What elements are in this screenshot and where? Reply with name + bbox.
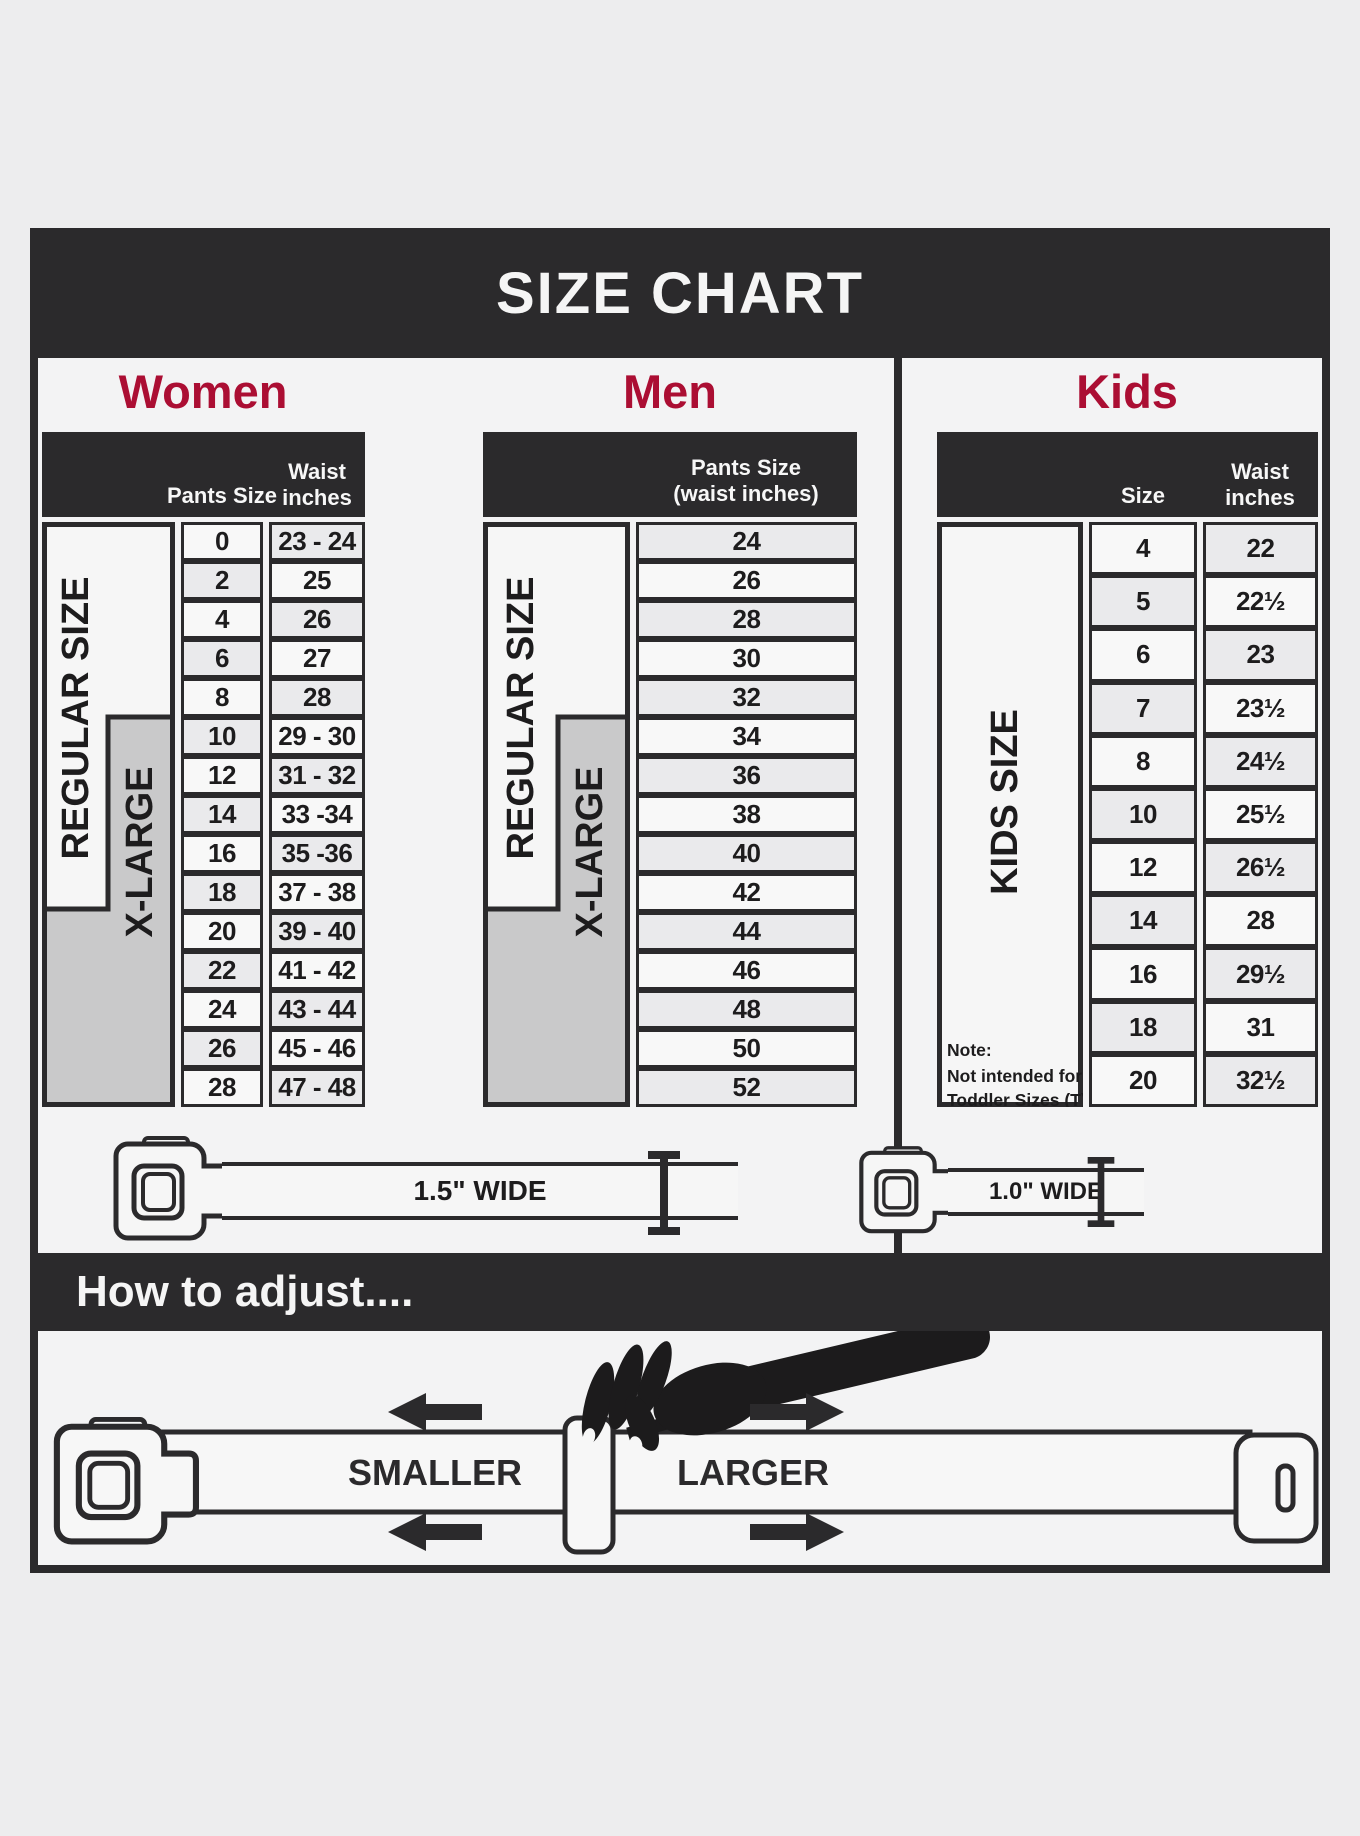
kids-size-cell: 12 bbox=[1089, 841, 1197, 894]
women-waist-cell: 41 - 42 bbox=[269, 951, 365, 990]
women-waist-cell: 33 -34 bbox=[269, 795, 365, 834]
women-waist-cell: 28 bbox=[269, 678, 365, 717]
men-pants-size-cell: 24 bbox=[636, 522, 857, 561]
how-to-adjust-heading: How to adjust.... bbox=[76, 1267, 413, 1317]
kids-size-header: Size bbox=[1121, 483, 1165, 509]
women-xlarge-label: X-LARGE bbox=[119, 767, 161, 938]
men-table: 24 26 28 30 32 34 36 38 40 42 44 46 48 5… bbox=[636, 522, 857, 1107]
men-pants-size-cell: 26 bbox=[636, 561, 857, 600]
men-pants-size-cell: 46 bbox=[636, 951, 857, 990]
women-pants-size-cell: 4 bbox=[181, 600, 263, 639]
women-table: 0 23 - 24 2 25 4 26 6 27 8 28 10 29 - 30… bbox=[181, 522, 365, 1107]
women-waist-cell: 37 - 38 bbox=[269, 873, 365, 912]
smaller-label: SMALLER bbox=[348, 1452, 522, 1493]
kids-size-cell: 14 bbox=[1089, 894, 1197, 947]
kids-waist-cell: 25½ bbox=[1203, 788, 1318, 841]
women-table-header: Pants Size Waistinches bbox=[42, 432, 365, 517]
women-pants-size-cell: 24 bbox=[181, 990, 263, 1029]
kids-size-cell: 4 bbox=[1089, 522, 1197, 575]
men-pants-size-cell: 32 bbox=[636, 678, 857, 717]
men-heading: Men bbox=[623, 364, 717, 419]
men-pants-size-cell: 52 bbox=[636, 1068, 857, 1107]
men-regular-size-label: REGULAR SIZE bbox=[500, 577, 542, 860]
kids-size-cell: 16 bbox=[1089, 947, 1197, 1000]
men-pants-size-cell: 48 bbox=[636, 990, 857, 1029]
kids-belt-buckle-icon bbox=[858, 1146, 958, 1238]
how-to-adjust-bar: How to adjust.... bbox=[30, 1253, 1330, 1331]
page-title: SIZE CHART bbox=[496, 260, 864, 327]
women-waist-cell: 29 - 30 bbox=[269, 717, 365, 756]
women-size-label-area: REGULAR SIZE X-LARGE bbox=[42, 522, 175, 1107]
men-pants-size-cell: 34 bbox=[636, 717, 857, 756]
men-pants-size-cell: 42 bbox=[636, 873, 857, 912]
women-pants-size-cell: 8 bbox=[181, 678, 263, 717]
kids-waist-cell: 26½ bbox=[1203, 841, 1318, 894]
kids-waist-cell: 22 bbox=[1203, 522, 1318, 575]
women-waist-cell: 23 - 24 bbox=[269, 522, 365, 561]
women-pants-size-cell: 18 bbox=[181, 873, 263, 912]
kids-note-line1: Note: bbox=[947, 1040, 992, 1060]
women-pants-size-cell: 16 bbox=[181, 834, 263, 873]
women-waist-cell: 25 bbox=[269, 561, 365, 600]
women-pants-size-cell: 28 bbox=[181, 1068, 263, 1107]
size-chart-title-bar: SIZE CHART bbox=[30, 228, 1330, 358]
kids-size-label: KIDS SIZE bbox=[984, 709, 1026, 895]
men-pants-size-cell: 28 bbox=[636, 600, 857, 639]
women-pants-size-cell: 26 bbox=[181, 1029, 263, 1068]
women-pants-size-header: Pants Size bbox=[167, 483, 277, 509]
kids-waist-cell: 32½ bbox=[1203, 1054, 1318, 1107]
kids-table-header: Size Waistinches bbox=[937, 432, 1318, 517]
adult-belt-end-marker-icon bbox=[646, 1151, 682, 1235]
women-waist-cell: 27 bbox=[269, 639, 365, 678]
kids-size-cell: 8 bbox=[1089, 735, 1197, 788]
men-pants-size-cell: 50 bbox=[636, 1029, 857, 1068]
men-pants-size-cell: 36 bbox=[636, 756, 857, 795]
kids-note-line2: Not intended for bbox=[947, 1066, 1082, 1086]
kids-size-label-area: KIDS SIZE Note: Not intended for Toddler… bbox=[937, 522, 1083, 1107]
kids-waist-cell: 23 bbox=[1203, 628, 1318, 681]
women-pants-size-cell: 2 bbox=[181, 561, 263, 600]
arrow-right-lower-icon bbox=[750, 1513, 844, 1551]
men-size-label-area: REGULAR SIZE X-LARGE bbox=[483, 522, 630, 1107]
kids-size-cell: 18 bbox=[1089, 1001, 1197, 1054]
men-xlarge-label: X-LARGE bbox=[569, 767, 611, 938]
kids-size-cell: 7 bbox=[1089, 682, 1197, 735]
belt-end-tab-icon bbox=[1236, 1435, 1316, 1541]
women-waist-header: Waistinches bbox=[282, 459, 352, 511]
women-pants-size-cell: 12 bbox=[181, 756, 263, 795]
women-waist-cell: 35 -36 bbox=[269, 834, 365, 873]
kids-size-cell: 20 bbox=[1089, 1054, 1197, 1107]
kids-waist-cell: 23½ bbox=[1203, 682, 1318, 735]
women-pants-size-cell: 0 bbox=[181, 522, 263, 561]
men-pants-size-cell: 38 bbox=[636, 795, 857, 834]
men-pants-size-cell: 44 bbox=[636, 912, 857, 951]
women-pants-size-cell: 20 bbox=[181, 912, 263, 951]
kids-waist-cell: 22½ bbox=[1203, 575, 1318, 628]
kids-waist-cell: 28 bbox=[1203, 894, 1318, 947]
kids-size-cell: 5 bbox=[1089, 575, 1197, 628]
kids-table: 4 22 5 22½ 6 23 7 23½ 8 24½ 10 25½ 12 26… bbox=[1089, 522, 1318, 1107]
kids-heading: Kids bbox=[1076, 364, 1178, 419]
kids-waist-header: Waistinches bbox=[1225, 459, 1295, 511]
men-pants-size-cell: 30 bbox=[636, 639, 857, 678]
larger-label: LARGER bbox=[677, 1452, 829, 1493]
women-pants-size-cell: 22 bbox=[181, 951, 263, 990]
women-waist-cell: 47 - 48 bbox=[269, 1068, 365, 1107]
women-regular-size-label: REGULAR SIZE bbox=[55, 577, 97, 860]
women-waist-cell: 39 - 40 bbox=[269, 912, 365, 951]
adult-belt-buckle-icon bbox=[112, 1136, 232, 1246]
adult-belt-width-label: 1.5" WIDE bbox=[413, 1175, 546, 1207]
women-pants-size-cell: 14 bbox=[181, 795, 263, 834]
women-heading: Women bbox=[119, 364, 288, 419]
adjust-illustration: SMALLER LARGER bbox=[38, 1331, 1322, 1563]
women-waist-cell: 45 - 46 bbox=[269, 1029, 365, 1068]
section-divider bbox=[894, 358, 902, 1255]
kids-waist-cell: 24½ bbox=[1203, 735, 1318, 788]
kids-waist-cell: 29½ bbox=[1203, 947, 1318, 1000]
men-table-header: Pants Size(waist inches) bbox=[483, 432, 857, 517]
kids-size-cell: 6 bbox=[1089, 628, 1197, 681]
kids-note-line3: Toddler Sizes (T) bbox=[947, 1090, 1083, 1107]
women-pants-size-cell: 6 bbox=[181, 639, 263, 678]
women-waist-cell: 26 bbox=[269, 600, 365, 639]
arrow-left-upper-icon bbox=[388, 1393, 482, 1431]
men-pants-size-header: Pants Size(waist inches) bbox=[673, 455, 818, 507]
men-pants-size-cell: 40 bbox=[636, 834, 857, 873]
women-pants-size-cell: 10 bbox=[181, 717, 263, 756]
women-waist-cell: 43 - 44 bbox=[269, 990, 365, 1029]
kids-belt-end-marker-icon bbox=[1086, 1157, 1116, 1227]
kids-size-cell: 10 bbox=[1089, 788, 1197, 841]
women-waist-cell: 31 - 32 bbox=[269, 756, 365, 795]
kids-waist-cell: 31 bbox=[1203, 1001, 1318, 1054]
arrow-left-lower-icon bbox=[388, 1513, 482, 1551]
